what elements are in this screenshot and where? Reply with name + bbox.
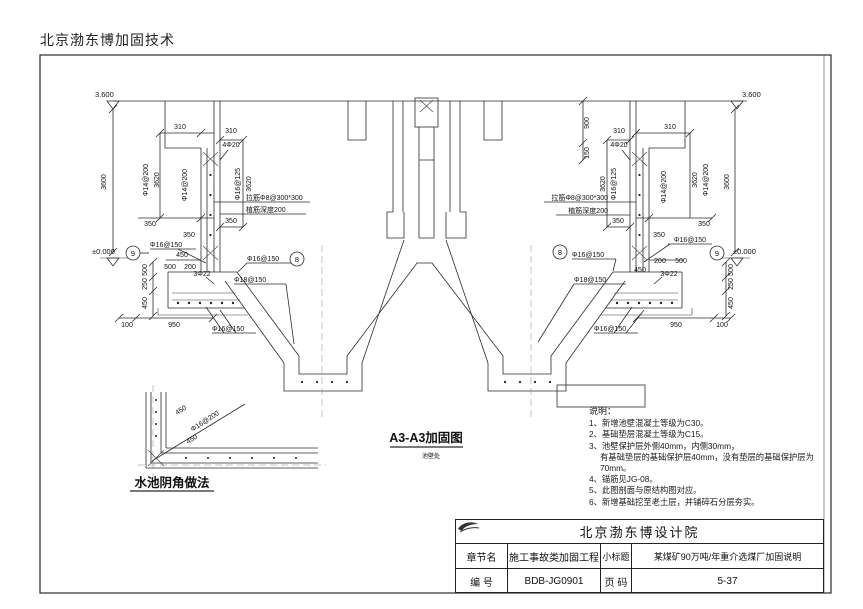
- main-drawing-svg: 3.600 3600 310 Φ14@200 3620 350 310 4Φ20…: [0, 0, 863, 609]
- scale-box: [557, 385, 645, 407]
- elevation-marker-icon: [107, 101, 119, 109]
- hatch-x-icon: [148, 450, 164, 466]
- right-wall: [630, 101, 685, 272]
- anchor-depth-label-right: 植筋深度200: [568, 206, 608, 215]
- hatch-x-icon: [632, 246, 647, 260]
- elev-top-left: 3.600: [95, 90, 114, 99]
- ground-line: [100, 101, 750, 266]
- dim-250-right-v: 250: [728, 278, 735, 290]
- notes-block: 说明： 1、新增池壁混凝土等级为C30。 2、基础垫层混凝土等级为C15。 3、…: [589, 406, 841, 508]
- rebar-18-150-left: Φ18@150: [234, 277, 266, 284]
- center-column: [387, 98, 466, 238]
- dim-350-right-mid: 350: [653, 232, 665, 239]
- dim-200-right: 200: [654, 258, 666, 265]
- note-item: 4、锚筋见JG-08。: [589, 474, 841, 485]
- notes-heading: 说明：: [589, 406, 841, 417]
- rebar-16-150-right-wall: Φ16@150: [674, 237, 706, 244]
- zero-level-marker-icon: [107, 258, 119, 266]
- dim-3620-right-inner: 3620: [600, 176, 607, 192]
- subtitle-value: 某煤矿90万吨/年重介选煤厂加固说明: [632, 544, 823, 568]
- rebar-14-right-outer: Φ14@200: [703, 164, 710, 196]
- elev-zero-right: ±0.000: [733, 247, 756, 256]
- title-block: 北京渤东博设计院 章节名 施工事故类加固工程 小标题 某煤矿90万吨/年重介选煤…: [455, 519, 824, 593]
- dim-250-left-v: 250: [142, 278, 149, 290]
- dim-310-left-outer: 310: [174, 124, 186, 131]
- elev-zero-left: ±0.000: [92, 247, 115, 256]
- title-block-row3: 编 号 BDB-JG0901 页 码 5-37: [456, 569, 823, 593]
- rebar-16-150-left-slope: Φ16@150: [247, 256, 279, 263]
- dimension-lines: [113, 101, 735, 318]
- dim-350-right-inner: 350: [612, 218, 624, 225]
- tie-bar-label-left: 拉筋Φ8@300*300: [246, 193, 303, 202]
- bubble-9-left-num: 9: [131, 249, 135, 258]
- rebar-16-125-left: Φ16@125: [235, 168, 242, 200]
- hatch-x-icon: [203, 246, 218, 260]
- note-item: 5、此图剖面与原结构图对应。: [589, 485, 841, 496]
- note-item: 2、基础垫层混凝土等级为C15。: [589, 429, 841, 440]
- dim-450-right: 450: [634, 267, 646, 274]
- drawing-subtitle: 池壁处: [422, 452, 440, 460]
- dim-3620-left-outer: 3620: [154, 172, 161, 188]
- drawing-sheet: 北京渤东博加固技术: [0, 0, 863, 609]
- dim-310-left-inner: 310: [225, 128, 237, 135]
- note-item: 1、新增池壁混凝土等级为C30。: [589, 418, 841, 429]
- dim-150-center: 150: [584, 147, 591, 159]
- drawing-title: A3-A3加固图: [389, 430, 463, 445]
- rebar-3d22-left: 3Φ22: [193, 271, 210, 278]
- dim-950-right: 950: [670, 322, 682, 329]
- dim-310-right-outer: 310: [664, 124, 676, 131]
- dim-450-left-v: 450: [142, 297, 149, 309]
- dim-500-right-v: 500: [728, 264, 735, 276]
- dim-310-right-inner: 310: [613, 128, 625, 135]
- hopper-profile: [225, 240, 625, 420]
- institute-name: 北京渤东博设计院: [579, 522, 699, 541]
- note-item: 6、新增基础挖至老土层，并铺碎石分层夯实。: [589, 497, 841, 508]
- institute-logo: [456, 520, 480, 534]
- chapter-value: 施工事故类加固工程: [508, 544, 601, 568]
- sheet-frame: [40, 55, 831, 593]
- dim-900-center: 900: [584, 117, 591, 129]
- detail-dim-450-lower: 450: [185, 434, 199, 446]
- rebar-3d22-right: 3Φ22: [660, 271, 677, 278]
- note-item-continuation: 有基础垫层的基础保护层40mm，没有垫层的基础保护层为70mm。: [589, 452, 841, 474]
- corner-detail: 450 Φ16@200 450 水池阴角做法: [130, 385, 326, 491]
- rebar-14-right-mid: Φ14@200: [661, 171, 668, 203]
- anchor-depth-label-left: 植筋深度200: [246, 205, 286, 214]
- dim-3620-left-inner: 3620: [246, 176, 253, 192]
- dim-500-left: 500: [164, 264, 176, 271]
- note-item: 3、池壁保护层外侧40mm，内侧30mm，: [589, 441, 841, 452]
- drawing-title-group: A3-A3加固图 池壁处: [389, 430, 463, 460]
- title-block-row2: 章节名 施工事故类加固工程 小标题 某煤矿90万吨/年重介选煤厂加固说明: [456, 544, 823, 569]
- elev-top-right: 3.600: [742, 90, 761, 99]
- dim-200-left: 200: [184, 264, 196, 271]
- tie-bar-label-right: 拉筋Φ8@300*300: [551, 193, 608, 202]
- rebar-14-left-mid: Φ14@200: [182, 169, 189, 201]
- title-block-institute-row: 北京渤东博设计院: [456, 520, 823, 544]
- right-footing: [602, 272, 692, 315]
- dim-3600-right: 3600: [724, 174, 731, 190]
- labels-left: 3.600 3600 310 Φ14@200 3620 350 310 4Φ20…: [92, 90, 303, 333]
- dim-450-right-v: 450: [728, 297, 735, 309]
- hatch-x-icon: [203, 152, 218, 166]
- page-label: 页 码: [601, 569, 632, 593]
- dim-350-left-inner: 350: [225, 218, 237, 225]
- dim-450-left: 450: [176, 252, 188, 259]
- dim-100-right: 100: [716, 322, 728, 329]
- center-notches: [348, 101, 502, 140]
- dimension-ticks: [109, 97, 739, 322]
- subtitle-label: 小标题: [601, 544, 632, 568]
- page-value: 5-37: [632, 569, 823, 593]
- number-label: 编 号: [456, 569, 508, 593]
- bubble-9-right-num: 9: [715, 249, 719, 258]
- hatch-x-icon: [632, 152, 647, 166]
- hatch-x-icon: [420, 100, 433, 112]
- dim-100-left: 100: [121, 322, 133, 329]
- elevation-marker-icon: [731, 101, 743, 109]
- dim-3600-left: 3600: [101, 174, 108, 190]
- dim-500-left-v: 500: [142, 264, 149, 276]
- rebar-16-150-right-bottom: Φ16@150: [594, 326, 626, 333]
- dim-500-right: 500: [675, 258, 687, 265]
- rebar-16-125-right: Φ16@125: [611, 168, 618, 200]
- dim-950-left: 950: [168, 322, 180, 329]
- dim-3620-right-outer: 3620: [692, 172, 699, 188]
- dim-350-left-outer: 350: [144, 221, 156, 228]
- detail-dim-450-upper: 450: [174, 405, 188, 417]
- rebar-18-150-right: Φ18@150: [574, 277, 606, 284]
- rebar-14-left-outer: Φ14@200: [143, 164, 150, 196]
- rebar-16-150-left-bottom: Φ16@150: [212, 326, 244, 333]
- chapter-label: 章节名: [456, 544, 508, 568]
- rebar-16-150-left-wall: Φ16@150: [150, 242, 182, 249]
- rebar-4d20-right: 4Φ20: [610, 142, 627, 149]
- number-value: BDB-JG0901: [508, 569, 601, 593]
- detail-title: 水池阴角做法: [134, 475, 210, 490]
- dim-350-left-mid: 350: [183, 232, 195, 239]
- bubble-8-left-num: 8: [295, 255, 299, 264]
- rebar-16-150-right-slope: Φ16@150: [572, 252, 604, 259]
- dim-350-right-outer: 350: [698, 221, 710, 228]
- rebar-4d20-left: 4Φ20: [222, 142, 239, 149]
- bubble-8-right-num: 8: [558, 248, 562, 257]
